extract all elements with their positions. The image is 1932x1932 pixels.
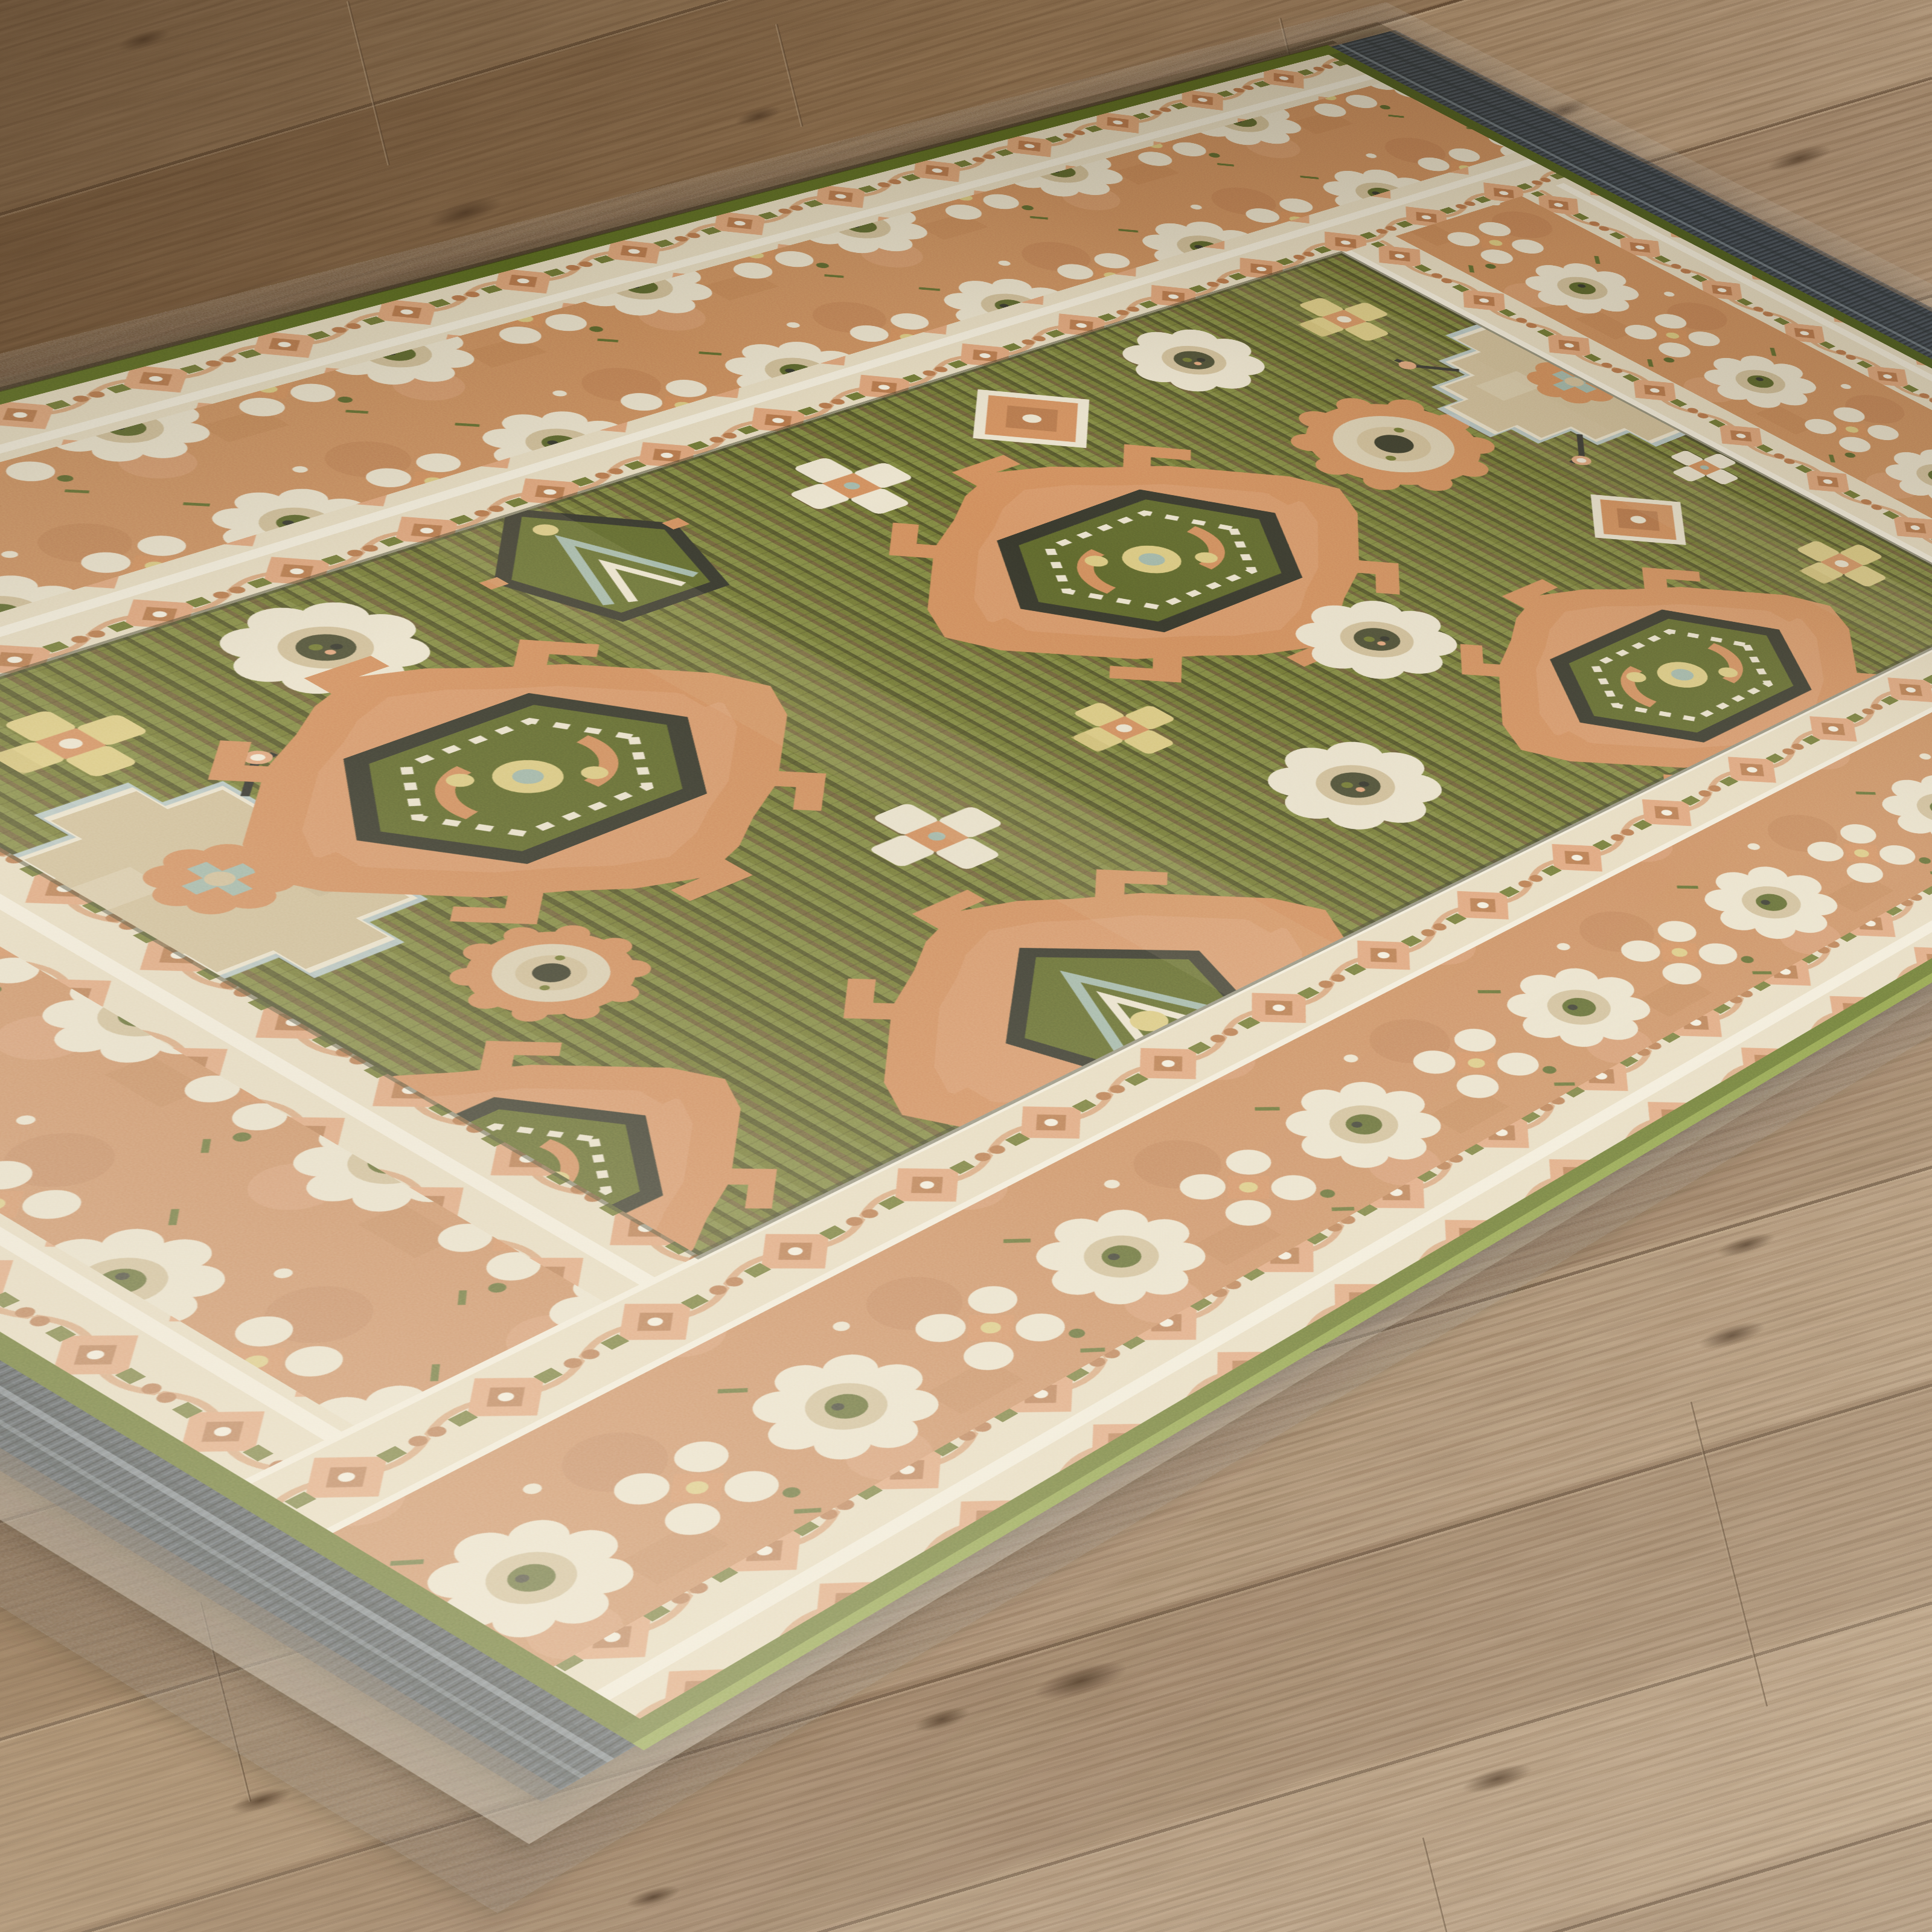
area-rug [0, 0, 1932, 1932]
rug-surface [0, 45, 1932, 1748]
rug-artwork [0, 22, 1932, 1844]
rug-sheen [0, 22, 1932, 1844]
rug-product-photo [0, 0, 1932, 1932]
